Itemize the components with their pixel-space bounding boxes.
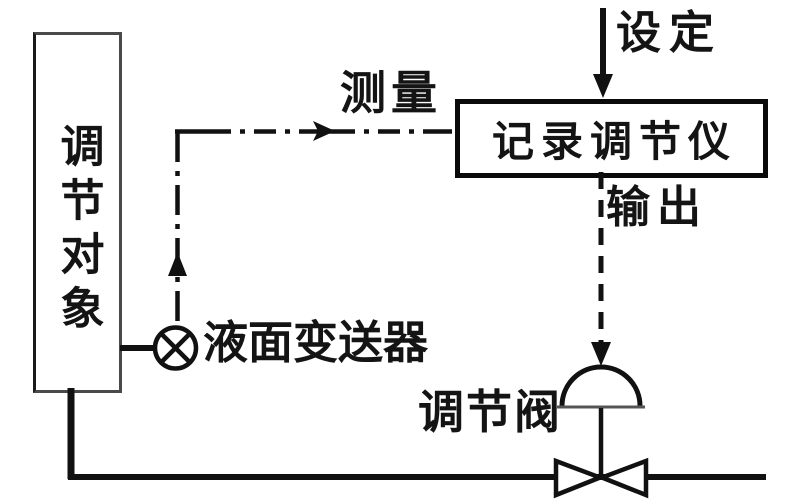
valve-body-left-triangle-icon — [556, 461, 600, 495]
valve-body-right-triangle-icon — [602, 461, 646, 495]
setpoint-arrowhead-icon — [593, 74, 613, 98]
control-loop-diagram: 调节对象 记录调节仪 测量 设定 输出 液面变送器 调节阀 — [0, 0, 800, 500]
valve-actuator-dome-icon — [562, 367, 640, 406]
output-arrowhead-icon — [591, 342, 611, 366]
measurement-arrowhead-up-icon — [168, 252, 187, 276]
diagram-lines-layer — [0, 0, 800, 500]
